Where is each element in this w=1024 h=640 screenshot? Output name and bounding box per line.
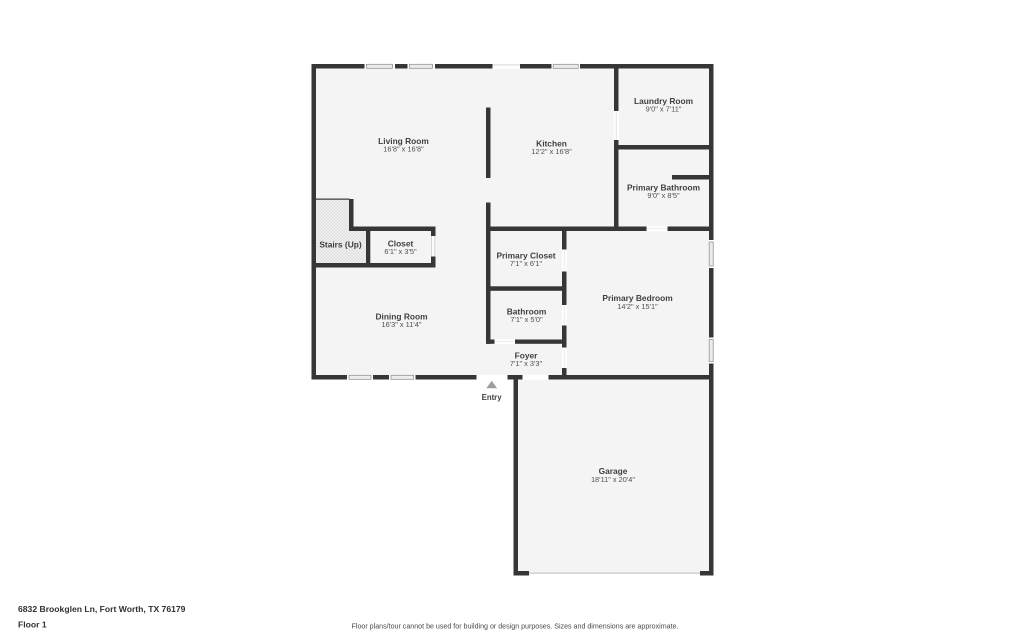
svg-text:6'1" x 3'5": 6'1" x 3'5": [384, 247, 417, 256]
svg-text:Floor 1: Floor 1: [18, 620, 47, 630]
svg-text:7'1" x 6'1": 7'1" x 6'1": [510, 259, 543, 268]
svg-text:7'1" x 3'3": 7'1" x 3'3": [510, 359, 543, 368]
svg-text:6832 Brookglen Ln, Fort Worth,: 6832 Brookglen Ln, Fort Worth, TX 76179: [18, 604, 186, 614]
svg-text:9'0" x 8'5": 9'0" x 8'5": [647, 191, 680, 200]
svg-text:16'8" x 16'8": 16'8" x 16'8": [383, 145, 424, 154]
svg-text:Floor plans/tour cannot be use: Floor plans/tour cannot be used for buil…: [352, 622, 679, 630]
svg-text:9'0" x 7'11": 9'0" x 7'11": [646, 105, 682, 114]
svg-text:18'11" x 20'4": 18'11" x 20'4": [591, 475, 635, 484]
svg-text:14'2" x 15'1": 14'2" x 15'1": [617, 302, 658, 311]
svg-text:16'3" x 11'4": 16'3" x 11'4": [382, 320, 422, 329]
svg-text:Entry: Entry: [482, 393, 503, 402]
svg-text:7'1" x 5'0": 7'1" x 5'0": [510, 315, 543, 324]
svg-text:12'2" x 16'8": 12'2" x 16'8": [531, 147, 572, 156]
svg-text:Stairs (Up): Stairs (Up): [319, 239, 362, 249]
